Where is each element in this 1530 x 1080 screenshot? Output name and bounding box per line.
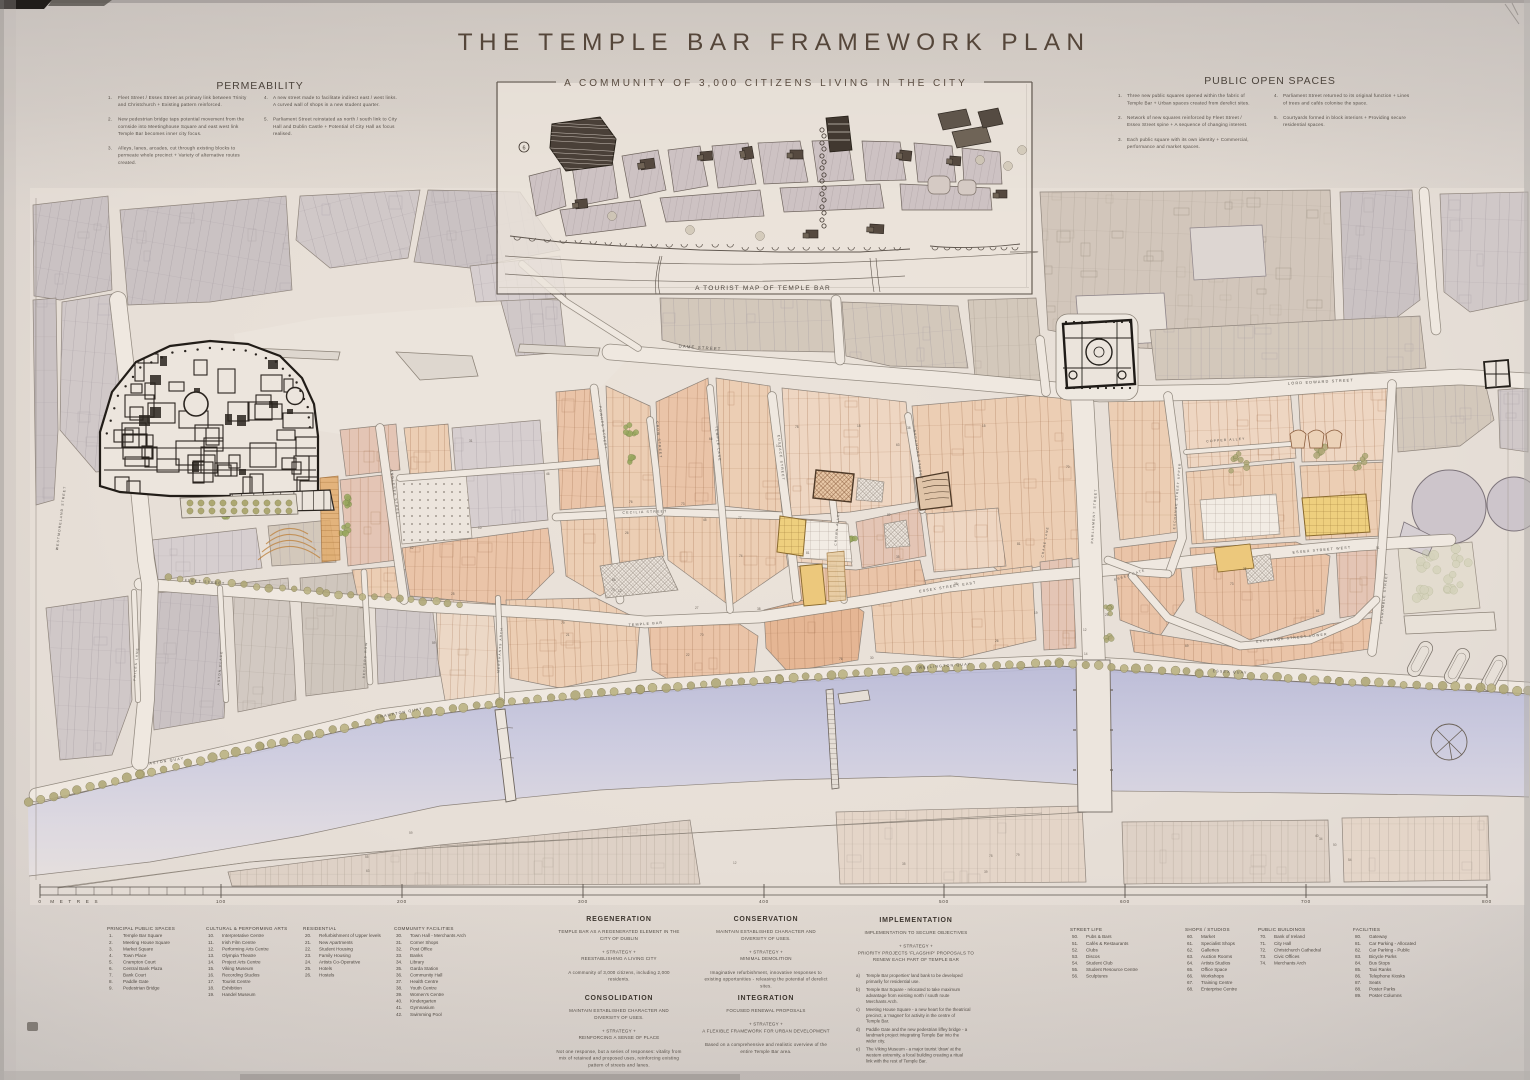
svg-text:34.: 34. bbox=[396, 959, 402, 964]
svg-text:10: 10 bbox=[776, 444, 780, 448]
svg-text:Bicycle Parks: Bicycle Parks bbox=[1369, 954, 1397, 959]
svg-text:15: 15 bbox=[982, 424, 986, 428]
svg-text:Christchurch Cathedral: Christchurch Cathedral bbox=[1274, 947, 1321, 952]
svg-text:200: 200 bbox=[397, 899, 407, 904]
svg-text:50: 50 bbox=[1333, 843, 1337, 847]
svg-text:45: 45 bbox=[703, 518, 707, 522]
svg-text:Poster Columns: Poster Columns bbox=[1369, 993, 1402, 998]
svg-text:Discos: Discos bbox=[1086, 954, 1100, 959]
svg-text:REGENERATION: REGENERATION bbox=[586, 916, 651, 923]
svg-text:and Christchurch + Existing pa: and Christchurch + Existing pattern rein… bbox=[118, 102, 222, 107]
svg-text:10.: 10. bbox=[208, 933, 214, 938]
svg-text:Temple Bar.: Temple Bar. bbox=[866, 1019, 889, 1024]
svg-text:35.: 35. bbox=[396, 966, 402, 971]
svg-text:100: 100 bbox=[216, 899, 226, 904]
svg-text:51: 51 bbox=[1376, 546, 1380, 550]
svg-text:82.: 82. bbox=[1355, 947, 1361, 952]
svg-text:precinct, a 'magnet' for activ: precinct, a 'magnet' for activity in the… bbox=[866, 1013, 956, 1018]
svg-text:65.: 65. bbox=[1187, 967, 1193, 972]
svg-text:Pedestrian Bridge: Pedestrian Bridge bbox=[123, 986, 160, 991]
svg-text:Fleet Street / Essex Street as: Fleet Street / Essex Street as primary l… bbox=[118, 95, 247, 100]
svg-text:88: 88 bbox=[612, 578, 616, 582]
svg-text:55: 55 bbox=[365, 855, 369, 859]
svg-text:Merchants Arch: Merchants Arch bbox=[1274, 960, 1306, 965]
svg-text:74: 74 bbox=[739, 554, 743, 558]
svg-text:62.: 62. bbox=[1187, 947, 1193, 952]
svg-text:23.: 23. bbox=[305, 953, 311, 958]
svg-text:RESIDENTIAL: RESIDENTIAL bbox=[303, 926, 337, 931]
svg-text:Artists Co-Operative: Artists Co-Operative bbox=[319, 959, 361, 964]
svg-text:IMPLEMENTATION: IMPLEMENTATION bbox=[879, 917, 952, 924]
svg-text:c): c) bbox=[856, 1007, 860, 1012]
svg-text:Corner Shops: Corner Shops bbox=[410, 940, 439, 945]
svg-text:Student Resource Centre: Student Resource Centre bbox=[1086, 967, 1138, 972]
svg-text:0: 0 bbox=[38, 899, 41, 904]
svg-text:70: 70 bbox=[700, 633, 704, 637]
svg-text:+ STRATEGY +: + STRATEGY + bbox=[899, 944, 933, 949]
svg-text:700: 700 bbox=[1301, 899, 1311, 904]
svg-text:Temple Bar + Urban spaces crea: Temple Bar + Urban spaces created from d… bbox=[1127, 100, 1250, 105]
svg-text:MAINTAIN ESTABLISHED CHARACTER: MAINTAIN ESTABLISHED CHARACTER AND bbox=[569, 1008, 669, 1013]
svg-text:Seats: Seats bbox=[1369, 980, 1381, 985]
svg-text:New pedestrian bridge taps pot: New pedestrian bridge taps potential mov… bbox=[118, 117, 244, 122]
svg-text:CONSOLIDATION: CONSOLIDATION bbox=[585, 995, 654, 1002]
svg-text:74.: 74. bbox=[1260, 960, 1266, 965]
svg-text:Recording Studios: Recording Studios bbox=[222, 973, 260, 978]
svg-text:landmark project integrating T: landmark project integrating Temple Bar … bbox=[866, 1033, 960, 1038]
svg-text:Viking Museum: Viking Museum bbox=[222, 966, 253, 971]
svg-text:77: 77 bbox=[738, 516, 742, 520]
svg-text:40.: 40. bbox=[396, 999, 402, 1004]
svg-text:3.: 3. bbox=[1118, 137, 1122, 142]
svg-text:Exhibition: Exhibition bbox=[222, 986, 242, 991]
svg-text:Family Housing: Family Housing bbox=[319, 953, 351, 958]
svg-text:3.: 3. bbox=[108, 145, 112, 150]
svg-text:Banks: Banks bbox=[410, 953, 423, 958]
svg-text:Health Centre: Health Centre bbox=[410, 979, 439, 984]
svg-text:64.: 64. bbox=[1187, 960, 1193, 965]
svg-text:36.: 36. bbox=[396, 973, 402, 978]
svg-text:Central Bank Plaza: Central Bank Plaza bbox=[123, 966, 163, 971]
svg-text:+ STRATEGY +: + STRATEGY + bbox=[749, 1022, 783, 1027]
svg-text:Not one response, but a series: Not one response, but a series of respon… bbox=[556, 1049, 681, 1054]
svg-text:13.: 13. bbox=[208, 953, 214, 958]
svg-text:5.: 5. bbox=[109, 959, 113, 964]
svg-text:Market Square: Market Square bbox=[123, 946, 154, 951]
svg-text:Meeting House Square - a new h: Meeting House Square - a new heart for t… bbox=[866, 1007, 970, 1012]
svg-text:600: 600 bbox=[1120, 899, 1130, 904]
svg-text:Specialist Shops: Specialist Shops bbox=[1201, 941, 1236, 946]
svg-text:31.: 31. bbox=[396, 940, 402, 945]
svg-text:300: 300 bbox=[578, 899, 588, 904]
svg-text:existing opportunities - relea: existing opportunities - releasing the p… bbox=[704, 977, 828, 982]
svg-text:59: 59 bbox=[432, 641, 436, 645]
svg-text:SHOPS / STUDIOS: SHOPS / STUDIOS bbox=[1185, 927, 1230, 932]
svg-text:A COMMUNITY OF 3,000 CITIZENS: A COMMUNITY OF 3,000 CITIZENS LIVING IN … bbox=[564, 78, 968, 89]
svg-text:76: 76 bbox=[839, 657, 843, 661]
svg-text:50.: 50. bbox=[1072, 934, 1078, 939]
svg-text:66.: 66. bbox=[1187, 974, 1193, 979]
svg-text:FACILITIES: FACILITIES bbox=[1353, 927, 1380, 932]
svg-text:10: 10 bbox=[478, 526, 482, 530]
svg-text:Tourist Centre: Tourist Centre bbox=[222, 979, 251, 984]
svg-text:38: 38 bbox=[907, 426, 911, 430]
svg-text:35: 35 bbox=[896, 555, 900, 559]
svg-text:Alleys, lanes, arcades, cut th: Alleys, lanes, arcades, cut through exis… bbox=[118, 145, 236, 150]
svg-text:IMPLEMENTATION TO SECURE OBJEC: IMPLEMENTATION TO SECURE OBJECTIVES bbox=[865, 930, 968, 935]
svg-text:86.: 86. bbox=[1355, 974, 1361, 979]
svg-text:69: 69 bbox=[1185, 644, 1189, 648]
svg-text:Artists Studios: Artists Studios bbox=[1201, 960, 1231, 965]
svg-text:Crampton Court: Crampton Court bbox=[123, 959, 156, 964]
svg-text:Poster Parks: Poster Parks bbox=[1369, 987, 1396, 992]
svg-text:87.: 87. bbox=[1355, 980, 1361, 985]
svg-text:THE TEMPLE BAR FRAMEWORK PLAN: THE TEMPLE BAR FRAMEWORK PLAN bbox=[458, 29, 1091, 56]
svg-text:PERMEABILITY: PERMEABILITY bbox=[216, 80, 303, 92]
svg-text:residential spaces.: residential spaces. bbox=[1283, 122, 1325, 127]
svg-text:Performing Arts Centre: Performing Arts Centre bbox=[222, 946, 269, 951]
svg-text:21.: 21. bbox=[305, 940, 311, 945]
svg-text:d): d) bbox=[856, 1027, 860, 1032]
svg-text:4.: 4. bbox=[1274, 93, 1278, 98]
svg-text:400: 400 bbox=[759, 899, 769, 904]
svg-text:Temple Bar becomes inner city: Temple Bar becomes inner city focus. bbox=[118, 131, 202, 136]
svg-text:Pubs & Bars: Pubs & Bars bbox=[1086, 934, 1112, 939]
svg-text:4.: 4. bbox=[264, 95, 268, 100]
svg-text:Gymnasium: Gymnasium bbox=[410, 1005, 435, 1010]
svg-text:Women's Centre: Women's Centre bbox=[410, 992, 444, 997]
svg-text:39.: 39. bbox=[396, 992, 402, 997]
svg-text:Garda Station: Garda Station bbox=[410, 966, 439, 971]
svg-text:City Hall: City Hall bbox=[1274, 941, 1291, 946]
svg-text:19.: 19. bbox=[208, 992, 214, 997]
svg-text:62: 62 bbox=[410, 546, 414, 550]
svg-text:MAINTAIN ESTABLISHED CHARACTER: MAINTAIN ESTABLISHED CHARACTER AND bbox=[716, 929, 816, 934]
svg-text:a): a) bbox=[856, 973, 860, 978]
svg-text:Temple Bar properties' land ba: Temple Bar properties' land bank to be d… bbox=[866, 973, 963, 978]
svg-text:Meeting House Square: Meeting House Square bbox=[123, 940, 170, 945]
svg-text:34: 34 bbox=[1319, 837, 1323, 841]
svg-text:73: 73 bbox=[681, 502, 685, 506]
svg-text:Car Parking - Allocated: Car Parking - Allocated bbox=[1369, 941, 1416, 946]
svg-text:81: 81 bbox=[806, 551, 810, 555]
svg-text:11.: 11. bbox=[208, 940, 214, 945]
svg-text:5.: 5. bbox=[264, 117, 268, 122]
svg-text:link with the rest of Temple B: link with the rest of Temple Bar. bbox=[866, 1059, 927, 1064]
svg-text:81: 81 bbox=[1017, 542, 1021, 546]
svg-text:12: 12 bbox=[1083, 628, 1087, 632]
svg-text:40: 40 bbox=[1315, 834, 1319, 838]
svg-text:63: 63 bbox=[366, 869, 370, 873]
svg-text:Kindergarten: Kindergarten bbox=[410, 999, 437, 1004]
svg-text:Handel Museum: Handel Museum bbox=[222, 992, 256, 997]
svg-text:30.: 30. bbox=[396, 933, 402, 938]
svg-text:residents.: residents. bbox=[608, 977, 630, 982]
svg-text:Temple Bar Square - relocated: Temple Bar Square - relocated to take ma… bbox=[866, 987, 961, 992]
svg-text:A FLEXIBLE FRAMEWORK FOR URBAN: A FLEXIBLE FRAMEWORK FOR URBAN DEVELOPME… bbox=[702, 1028, 829, 1033]
svg-text:2.: 2. bbox=[1118, 115, 1122, 120]
svg-text:pattern of streets and lanes.: pattern of streets and lanes. bbox=[588, 1062, 650, 1067]
svg-text:25: 25 bbox=[1105, 613, 1109, 617]
svg-text:permeate whole precinct + Vari: permeate whole precinct + Variety of alt… bbox=[118, 153, 240, 158]
svg-text:Library: Library bbox=[410, 959, 425, 964]
svg-text:39: 39 bbox=[984, 870, 988, 874]
svg-text:Town Place: Town Place bbox=[123, 953, 147, 958]
svg-text:Cafés & Restaurants: Cafés & Restaurants bbox=[1086, 941, 1129, 946]
svg-text:20.: 20. bbox=[305, 933, 311, 938]
svg-text:sites.: sites. bbox=[760, 983, 772, 988]
svg-text:22: 22 bbox=[686, 653, 690, 657]
svg-text:70: 70 bbox=[611, 588, 615, 592]
svg-text:CONSERVATION: CONSERVATION bbox=[734, 916, 799, 923]
svg-text:52.: 52. bbox=[1072, 947, 1078, 952]
svg-text:76: 76 bbox=[629, 500, 633, 504]
svg-text:Based on a comprehensive and r: Based on a comprehensive and realistic o… bbox=[705, 1042, 827, 1047]
svg-text:14.: 14. bbox=[208, 959, 214, 964]
svg-text:1.: 1. bbox=[109, 933, 113, 938]
svg-text:Interpretative Centre: Interpretative Centre bbox=[222, 933, 264, 938]
svg-text:16.: 16. bbox=[208, 973, 214, 978]
svg-text:+ STRATEGY +: + STRATEGY + bbox=[749, 949, 783, 954]
svg-text:21: 21 bbox=[566, 633, 570, 637]
svg-text:83.: 83. bbox=[1355, 954, 1361, 959]
svg-text:12: 12 bbox=[618, 589, 622, 593]
svg-text:Sculptures: Sculptures bbox=[1086, 974, 1108, 979]
svg-text:PRIORITY PROJECTS 'FLAGSHIP' P: PRIORITY PROJECTS 'FLAGSHIP' PROPOSALS T… bbox=[858, 950, 974, 955]
svg-text:56.: 56. bbox=[1072, 974, 1078, 979]
svg-text:Project Arts Centre: Project Arts Centre bbox=[222, 959, 261, 964]
svg-text:Paddle Gate: Paddle Gate bbox=[123, 979, 149, 984]
svg-text:mix of retained and proposed u: mix of retained and proposed uses, reinf… bbox=[559, 1056, 679, 1061]
svg-text:46: 46 bbox=[546, 472, 550, 476]
svg-text:primarily for residential use.: primarily for residential use. bbox=[866, 979, 920, 984]
svg-text:b): b) bbox=[856, 987, 860, 992]
svg-text:26: 26 bbox=[995, 639, 999, 643]
svg-text:7.: 7. bbox=[109, 973, 113, 978]
svg-text:PUBLIC BUILDINGS: PUBLIC BUILDINGS bbox=[1258, 927, 1305, 932]
svg-text:12: 12 bbox=[733, 861, 737, 865]
svg-text:Bank of Ireland: Bank of Ireland bbox=[1274, 934, 1305, 939]
svg-text:DIVERSITY OF USES.: DIVERSITY OF USES. bbox=[741, 936, 791, 941]
svg-text:2.: 2. bbox=[109, 940, 113, 945]
svg-text:37.: 37. bbox=[396, 979, 402, 984]
svg-text:DIVERSITY OF USES.: DIVERSITY OF USES. bbox=[594, 1015, 644, 1020]
svg-text:6.: 6. bbox=[109, 966, 113, 971]
svg-text:27: 27 bbox=[695, 606, 699, 610]
svg-text:89.: 89. bbox=[1355, 993, 1361, 998]
svg-text:72.: 72. bbox=[1260, 947, 1266, 952]
svg-text:42.: 42. bbox=[396, 1012, 402, 1017]
svg-text:Imaginative refurbishment, inn: Imaginative refurbishment, innovative re… bbox=[710, 970, 822, 975]
svg-text:RENEW EACH PART OF TEMPLE BAR: RENEW EACH PART OF TEMPLE BAR bbox=[873, 957, 960, 962]
svg-text:Parliament Street reinstated a: Parliament Street reinstated as north / … bbox=[273, 117, 397, 122]
svg-text:82: 82 bbox=[887, 513, 891, 517]
svg-text:1.: 1. bbox=[1118, 93, 1122, 98]
svg-text:A new street made to facilitat: A new street made to facilitate indirect… bbox=[273, 95, 397, 100]
svg-text:COMMUNITY FACILITIES: COMMUNITY FACILITIES bbox=[394, 926, 454, 931]
svg-text:85.: 85. bbox=[1355, 967, 1361, 972]
svg-text:FOCUSED RENEWAL PROPOSALS: FOCUSED RENEWAL PROPOSALS bbox=[726, 1008, 805, 1013]
svg-text:created.: created. bbox=[118, 160, 136, 165]
svg-text:59: 59 bbox=[409, 831, 413, 835]
svg-text:Civic Offices: Civic Offices bbox=[1274, 954, 1300, 959]
svg-text:Auction Rooms: Auction Rooms bbox=[1201, 954, 1233, 959]
svg-text:38: 38 bbox=[954, 582, 958, 586]
svg-text:Bank Court: Bank Court bbox=[123, 973, 147, 978]
svg-text:25: 25 bbox=[451, 592, 455, 596]
svg-text:Community Hall: Community Hall bbox=[410, 973, 442, 978]
svg-text:Essex Street spine + A sequenc: Essex Street spine + A sequence of chang… bbox=[1127, 122, 1248, 127]
svg-text:63.: 63. bbox=[1187, 954, 1193, 959]
svg-text:Market: Market bbox=[1201, 934, 1216, 939]
svg-text:M E T R E S: M E T R E S bbox=[50, 899, 100, 904]
svg-text:New Apartments: New Apartments bbox=[319, 940, 353, 945]
svg-text:REINFORCING A SENSE OF PLACE: REINFORCING A SENSE OF PLACE bbox=[579, 1035, 660, 1040]
svg-text:Taxi Ranks: Taxi Ranks bbox=[1369, 967, 1392, 972]
svg-text:of trees and cafés colonise th: of trees and cafés colonise the space. bbox=[1283, 100, 1368, 105]
svg-text:e): e) bbox=[856, 1047, 860, 1052]
svg-text:Swimming Pool: Swimming Pool bbox=[410, 1012, 442, 1017]
svg-text:63: 63 bbox=[896, 443, 900, 447]
svg-text:western extremity, a focal bui: western extremity, a focal building crea… bbox=[866, 1053, 963, 1058]
svg-text:PUBLIC OPEN SPACES: PUBLIC OPEN SPACES bbox=[1204, 75, 1336, 87]
svg-text:A TOURIST MAP OF TEMPLE BAR: A TOURIST MAP OF TEMPLE BAR bbox=[695, 285, 831, 292]
svg-text:Enterprise Centre: Enterprise Centre bbox=[1201, 987, 1237, 992]
svg-text:78: 78 bbox=[989, 854, 993, 858]
svg-text:Network of new squares reinfor: Network of new squares reinforced by Fle… bbox=[1127, 115, 1242, 120]
svg-text:60.: 60. bbox=[1187, 934, 1193, 939]
svg-text:26: 26 bbox=[625, 531, 629, 535]
svg-text:advantage from existing north: advantage from existing north / south ro… bbox=[866, 993, 950, 998]
svg-text:Hostels: Hostels bbox=[319, 973, 335, 978]
svg-text:Hall and Dublin Castle + Poten: Hall and Dublin Castle + Potential of Ci… bbox=[273, 124, 395, 129]
svg-text:6: 6 bbox=[522, 146, 525, 152]
svg-text:Parliament Street returned to: Parliament Street returned to its origin… bbox=[1283, 93, 1410, 98]
svg-text:Refurbishment of Upper levels: Refurbishment of Upper levels bbox=[319, 933, 381, 938]
svg-text:INTEGRATION: INTEGRATION bbox=[738, 995, 795, 1002]
svg-text:A curved wall of shops in a ne: A curved wall of shops in a new student … bbox=[273, 102, 380, 107]
svg-text:CULTURAL & PERFORMING ARTS: CULTURAL & PERFORMING ARTS bbox=[206, 926, 287, 931]
svg-text:Office Space: Office Space bbox=[1201, 967, 1228, 972]
svg-text:25.: 25. bbox=[305, 966, 311, 971]
svg-text:REESTABLISHING A LIVING CITY: REESTABLISHING A LIVING CITY bbox=[581, 956, 657, 961]
svg-text:55.: 55. bbox=[1072, 967, 1078, 972]
svg-text:70: 70 bbox=[1066, 465, 1070, 469]
svg-text:8.: 8. bbox=[109, 979, 113, 984]
svg-text:Each public square with its ow: Each public square with its own identity… bbox=[1127, 137, 1249, 142]
svg-text:81.: 81. bbox=[1355, 941, 1361, 946]
svg-text:+ STRATEGY +: + STRATEGY + bbox=[602, 1028, 636, 1033]
svg-text:71.: 71. bbox=[1260, 941, 1266, 946]
svg-text:79: 79 bbox=[561, 621, 565, 625]
svg-text:84.: 84. bbox=[1355, 960, 1361, 965]
svg-text:35: 35 bbox=[1243, 567, 1247, 571]
svg-text:Student Club: Student Club bbox=[1086, 960, 1113, 965]
svg-text:61.: 61. bbox=[1187, 941, 1193, 946]
svg-text:54.: 54. bbox=[1072, 960, 1078, 965]
svg-text:entire Temple Bar area.: entire Temple Bar area. bbox=[740, 1049, 791, 1054]
svg-text:78: 78 bbox=[795, 425, 799, 429]
svg-text:18: 18 bbox=[857, 424, 861, 428]
svg-text:The Viking Museum - a major to: The Viking Museum - a major tourist 'dra… bbox=[866, 1047, 962, 1052]
svg-text:35: 35 bbox=[902, 862, 906, 866]
svg-text:cornside into Meetinghouse Squ: cornside into Meetinghouse Square and ea… bbox=[118, 124, 239, 129]
svg-text:73.: 73. bbox=[1260, 954, 1266, 959]
svg-text:500: 500 bbox=[939, 899, 949, 904]
svg-text:73: 73 bbox=[1230, 582, 1234, 586]
svg-text:5.: 5. bbox=[1274, 115, 1278, 120]
svg-text:wider city.: wider city. bbox=[866, 1039, 885, 1044]
svg-text:15.: 15. bbox=[208, 966, 214, 971]
svg-text:4.: 4. bbox=[109, 953, 113, 958]
svg-text:68.: 68. bbox=[1187, 987, 1193, 992]
svg-text:CITY OF DUBLIN: CITY OF DUBLIN bbox=[600, 936, 638, 941]
svg-text:54: 54 bbox=[1348, 858, 1352, 862]
svg-text:19: 19 bbox=[1034, 611, 1038, 615]
svg-text:realised.: realised. bbox=[273, 131, 292, 136]
svg-text:Paddle Gate and the new pedest: Paddle Gate and the new pedestrian liffe… bbox=[866, 1027, 968, 1032]
svg-text:67.: 67. bbox=[1187, 980, 1193, 985]
svg-text:PRINCIPAL PUBLIC SPACES: PRINCIPAL PUBLIC SPACES bbox=[107, 926, 175, 931]
svg-text:MINIMAL DEMOLITION: MINIMAL DEMOLITION bbox=[740, 956, 791, 961]
svg-text:Telephone Kiosks: Telephone Kiosks bbox=[1369, 974, 1406, 979]
svg-text:70.: 70. bbox=[1260, 934, 1266, 939]
svg-text:38: 38 bbox=[757, 607, 761, 611]
svg-text:Workshops: Workshops bbox=[1201, 974, 1225, 979]
svg-text:A community of 3,000 citizens,: A community of 3,000 citizens, including… bbox=[568, 970, 670, 975]
svg-text:80.: 80. bbox=[1355, 934, 1361, 939]
svg-text:Olympia Theatre: Olympia Theatre bbox=[222, 953, 256, 958]
svg-text:3.: 3. bbox=[109, 946, 113, 951]
svg-text:33.: 33. bbox=[396, 953, 402, 958]
svg-text:26.: 26. bbox=[305, 973, 311, 978]
svg-text:Bus Stops: Bus Stops bbox=[1369, 960, 1391, 965]
svg-text:Gateway: Gateway bbox=[1369, 934, 1388, 939]
svg-text:79: 79 bbox=[1016, 853, 1020, 857]
svg-text:Post Office: Post Office bbox=[410, 946, 433, 951]
svg-text:18.: 18. bbox=[208, 986, 214, 991]
svg-text:Town Hall - Merchants Arch: Town Hall - Merchants Arch bbox=[410, 933, 466, 938]
svg-text:Temple Bar Square: Temple Bar Square bbox=[123, 933, 163, 938]
svg-text:Merchants Arch.: Merchants Arch. bbox=[866, 999, 898, 1004]
svg-text:30: 30 bbox=[870, 656, 874, 660]
svg-text:Irish Film Centre: Irish Film Centre bbox=[222, 940, 256, 945]
svg-text:800: 800 bbox=[1482, 899, 1492, 904]
svg-text:12.: 12. bbox=[208, 946, 214, 951]
svg-text:53.: 53. bbox=[1072, 954, 1078, 959]
svg-text:Courtyards formed in block int: Courtyards formed in block interiors + P… bbox=[1283, 115, 1406, 120]
svg-text:Three new public squares opene: Three new public squares opened within t… bbox=[1127, 93, 1245, 98]
svg-text:1.: 1. bbox=[108, 95, 112, 100]
svg-text:41.: 41. bbox=[396, 1005, 402, 1010]
svg-text:32.: 32. bbox=[396, 946, 402, 951]
svg-text:38.: 38. bbox=[396, 986, 402, 991]
svg-text:24.: 24. bbox=[305, 959, 311, 964]
svg-text:performance and market spaces.: performance and market spaces. bbox=[1127, 144, 1200, 149]
svg-text:31: 31 bbox=[469, 439, 473, 443]
svg-text:STREET LIFE: STREET LIFE bbox=[1070, 927, 1102, 932]
svg-text:Youth Centre: Youth Centre bbox=[410, 986, 437, 991]
svg-text:Hotels: Hotels bbox=[319, 966, 333, 971]
svg-text:9.: 9. bbox=[109, 986, 113, 991]
svg-text:61: 61 bbox=[1316, 609, 1320, 613]
svg-text:+ STRATEGY +: + STRATEGY + bbox=[602, 949, 636, 954]
svg-text:14: 14 bbox=[1084, 652, 1088, 656]
svg-text:51.: 51. bbox=[1072, 941, 1078, 946]
svg-text:TEMPLE BAR AS A REGENERATED EL: TEMPLE BAR AS A REGENERATED ELEMENT IN T… bbox=[558, 929, 679, 934]
svg-text:Galleries: Galleries bbox=[1201, 947, 1220, 952]
svg-text:Student Housing: Student Housing bbox=[319, 946, 353, 951]
